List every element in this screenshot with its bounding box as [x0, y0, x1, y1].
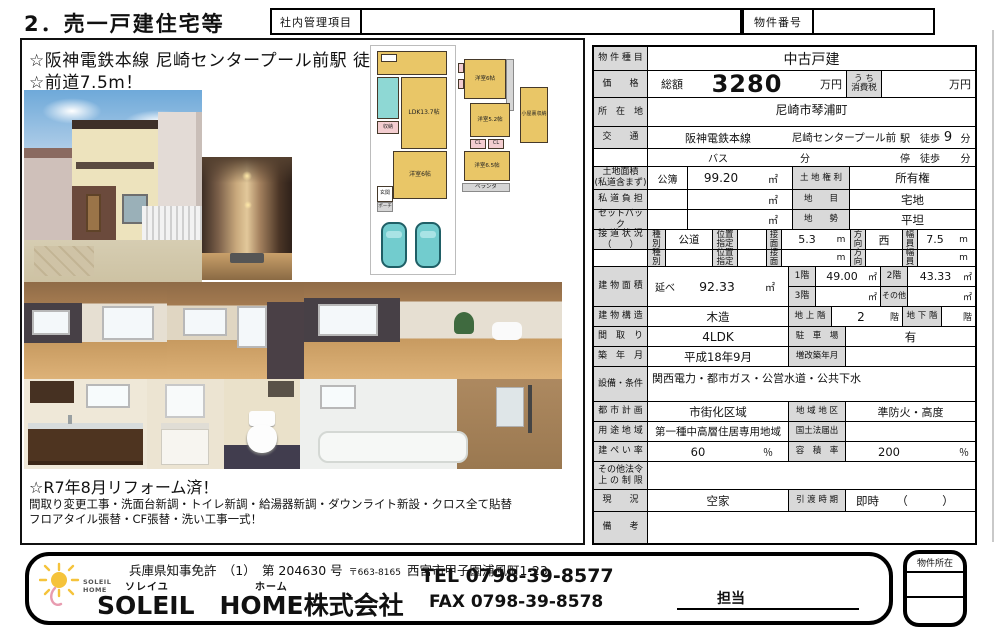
zoning-value: 第一種中高層住居専用地域	[648, 422, 788, 441]
parking-label: 駐 車 場	[788, 327, 846, 346]
balcony	[76, 162, 154, 169]
windshield	[386, 231, 402, 238]
property-type-value: 中古戸建	[648, 47, 975, 70]
window	[32, 310, 70, 335]
road-width-unit: m	[952, 230, 975, 249]
window	[183, 308, 227, 336]
car-icon	[381, 222, 407, 268]
far-unit: ％	[932, 442, 975, 461]
chair	[492, 322, 522, 340]
road-pos-label: 位置 指定	[712, 230, 738, 249]
ldk-label: LDK13.7帖	[408, 110, 439, 117]
row-coverage: 建 ぺ い 率 60 ％ 容 積 率 200 ％	[594, 442, 975, 462]
land-area-unit: ㎡	[754, 167, 792, 189]
photo-toilet	[224, 379, 300, 469]
row-traffic-1: 交 通 阪神電鉄本線 尼崎センタープール前 駅 徒歩 9 分	[594, 127, 975, 149]
other-law-value	[648, 462, 975, 489]
sink	[381, 54, 397, 62]
downlight	[244, 201, 252, 209]
price-prefix: 総額	[648, 71, 696, 97]
row-location: 所 在 地 尼崎市琴浦町	[594, 98, 975, 127]
range-hood	[30, 381, 74, 403]
front-door	[86, 194, 101, 232]
setback-value	[648, 210, 688, 229]
photo-kitchen	[24, 379, 147, 469]
reform-title: ☆R7年8月リフォーム済！	[29, 474, 218, 498]
internal-management-box: 社内管理項目	[270, 8, 742, 35]
attic-room: 小屋裏収納	[520, 87, 548, 143]
total-floor-value: 92.33	[682, 267, 752, 306]
bedroom-1f: 洋室6帖	[393, 151, 447, 199]
property-flyer-page: 2．売一戸建住宅等 社内管理項目 物件番号 ☆阪神電鉄本線 尼崎センタープール前…	[0, 0, 1000, 632]
floor2-area: 43.33㎡	[908, 267, 975, 286]
below-ground-label: 地 下 階	[902, 307, 942, 326]
property-location-label: 物件所在	[907, 556, 963, 569]
land-area-value: 99.20	[688, 167, 754, 189]
toilet-bowl	[247, 425, 277, 453]
toilet-tank	[249, 411, 275, 426]
floorplan-attic: 小屋裏収納	[520, 87, 548, 143]
road-dir-value: 西	[866, 230, 902, 249]
internal-management-label: 社内管理項目	[272, 10, 362, 33]
above-ground-floors: 2階	[832, 307, 902, 326]
other-area-label: その他	[880, 287, 908, 306]
row-road-1: 接 道 状 況 （ ） 種 別 公道 位置 指定 接 面 5.3 m 方 向 西…	[594, 230, 975, 250]
topography-value: 平坦	[850, 210, 975, 229]
windshield	[420, 231, 436, 238]
divider	[907, 571, 963, 573]
above-ground-label: 地 上 階	[788, 307, 832, 326]
page-title: 2．売一戸建住宅等	[24, 8, 225, 38]
floor2-label: 2階	[880, 267, 908, 286]
land-right-label: 土 地 権 利	[792, 167, 850, 189]
handover-label: 引 渡 時 期	[788, 490, 846, 511]
station: 尼崎センタープール前	[788, 127, 900, 148]
license-number: 兵庫県知事免許 （1） 第 204630 号	[129, 560, 343, 579]
far-label: 容 積 率	[788, 442, 846, 461]
land-law-value	[846, 422, 975, 441]
district-value: 準防火・高度	[846, 402, 975, 421]
land-register-label: 公簿	[648, 167, 688, 189]
land-law-label: 国土法届出	[788, 422, 846, 441]
car-icon	[415, 222, 441, 268]
price-unit: 万円	[798, 71, 846, 97]
stop-label: 停 徒歩	[900, 149, 940, 166]
photo-room-2	[167, 282, 304, 379]
row-price: 価 格 総額 3280 万円 う ち 消費税 万円	[594, 71, 975, 98]
floorplan-2f: 洋室6帖 洋室5.2帖 CL CL 洋室6.5帖 ベランダ	[458, 57, 516, 193]
tax-label: う ち 消費税	[846, 71, 882, 97]
road-type-label: 種 別	[648, 230, 666, 249]
window	[268, 381, 294, 397]
floor3-area: ㎡	[816, 287, 880, 306]
entry-mat	[230, 253, 264, 263]
location-value: 尼崎市琴浦町	[648, 98, 975, 126]
photo-hallway	[202, 157, 292, 280]
minutes-unit: 分	[956, 127, 975, 148]
bath-mirror	[496, 387, 524, 427]
kitchen-cabinets	[28, 429, 143, 465]
property-number-box: 物件番号	[742, 8, 935, 35]
bathtub	[318, 431, 468, 463]
row-facilities: 設備・条件 関西電力・都市ガス・公営水道・公共下水	[594, 367, 975, 402]
storage-closet: 収納	[377, 121, 399, 134]
row-building-area: 建 物 面 積 延べ 92.33 ㎡ 1階 49.00㎡ 2階 43.33㎡ 3…	[594, 267, 975, 307]
land-category-value: 宅地	[850, 190, 975, 209]
layout-value: 4LDK	[648, 327, 788, 346]
downlight	[242, 171, 252, 181]
floor1-label: 1階	[788, 267, 816, 286]
photo-vanity	[147, 379, 224, 469]
total-floor-label: 延べ	[648, 267, 682, 306]
contact-person-line: 担当	[677, 582, 859, 610]
walk-minutes: 9	[940, 127, 956, 148]
city-plan-value: 市街化区域	[648, 402, 788, 421]
company-name: SOLEIL HOME株式会社	[97, 586, 404, 622]
tax-value	[882, 71, 930, 97]
row-built-date: 築 年 月 平成18年9月 増改築年月	[594, 347, 975, 367]
road-width-value: 7.5	[918, 230, 952, 249]
bedroom-1f-label: 洋室6帖	[409, 172, 431, 179]
sliding-door	[237, 306, 267, 348]
white-fence	[142, 206, 202, 242]
road-face-value: 5.3	[782, 230, 832, 249]
window	[320, 385, 356, 409]
status-value: 空家	[648, 490, 788, 511]
sun-logo-icon	[39, 562, 83, 610]
plant	[454, 312, 474, 334]
private-road-value	[648, 190, 688, 209]
row-structure: 建 物 構 造 木造 地 上 階 2階 地 下 階 階	[594, 307, 975, 327]
bathroom-room	[377, 77, 399, 119]
spec-table: 物 件 種 目 中古戸建 価 格 総額 3280 万円 う ち 消費税 万円 所…	[592, 45, 977, 545]
renovation-date-value	[846, 347, 975, 366]
mirror	[165, 384, 205, 418]
other-area: ㎡	[908, 287, 975, 306]
below-ground-floors: 階	[942, 307, 975, 326]
setback-unit: ㎡	[754, 210, 792, 229]
fax-number: FAX 0798-39-8578	[429, 592, 603, 612]
private-road-unit: ㎡	[754, 190, 792, 209]
internal-management-value	[362, 10, 740, 33]
property-number-label: 物件番号	[744, 10, 814, 33]
window	[86, 384, 130, 408]
photo-room-3	[304, 282, 562, 379]
row-setback: セットバック ㎡ 地 勢 平坦	[594, 210, 975, 230]
company-footer: SOLEILHOME 兵庫県知事免許 （1） 第 204630 号 〒663-8…	[25, 552, 893, 625]
row-land-area: 土地面積 (私道含まず) 公簿 99.20 ㎡ 土 地 権 利 所有権	[594, 167, 975, 190]
photo-exterior	[24, 90, 202, 282]
ldk-room: LDK13.7帖	[401, 77, 447, 149]
bus-label: バス	[648, 149, 788, 166]
tel-number: TEL 0798-39-8577	[421, 565, 614, 587]
window	[318, 304, 378, 336]
window	[102, 306, 154, 340]
facilities-value: 関西電力・都市ガス・公営水道・公共下水	[648, 367, 975, 401]
total-floor-unit: ㎡	[752, 267, 788, 306]
bedroom-2f-a: 洋室6帖	[464, 59, 506, 99]
row-zoning: 用 途 地 域 第一種中高層住居専用地域 国土法届出	[594, 422, 975, 442]
road-face-label: 接 面	[766, 230, 782, 249]
stop-minutes-unit: 分	[956, 149, 975, 166]
property-number-value	[814, 10, 933, 33]
tax-unit: 万円	[930, 71, 975, 97]
row-layout: 間 取 り 4LDK 駐 車 場 有	[594, 327, 975, 347]
rail-line: 阪神電鉄本線	[648, 127, 788, 148]
row-property-type: 物 件 種 目 中古戸建	[594, 47, 975, 71]
porch: ポーチ	[377, 202, 393, 212]
row-road-2: 種 別 位置 指定 接 面 m 方 向 幅 員 m	[594, 250, 975, 267]
row-private-road: 私 道 負 担 ㎡ 地 目 宅地	[594, 190, 975, 210]
veranda-bottom: ベランダ	[462, 183, 510, 192]
row-traffic-2: バス 分 停 徒歩 分	[594, 149, 975, 167]
district-label: 地 域 地 区	[788, 402, 846, 421]
row-remarks: 備 考	[594, 512, 975, 543]
postal-code: 〒663-8165	[349, 565, 401, 578]
row-city-plan: 都 市 計 画 市街化区域 地 域 地 区 準防火・高度	[594, 402, 975, 422]
reform-line-1: 間取り変更工事・洗面台新調・トイレ新調・給湯器新調・ダウンライト新設・クロス全て…	[29, 496, 512, 512]
photo-bathroom	[300, 379, 562, 469]
accent-wall	[267, 302, 304, 379]
divider	[907, 596, 963, 598]
row-status: 現 況 空家 引 渡 時 期 即時 （ ）	[594, 490, 975, 512]
photo-panel: ☆阪神電鉄本線 尼崎センタープール前駅 徒歩9分！ ☆前道7.5m！	[20, 38, 585, 545]
road-pos-value	[738, 230, 766, 249]
property-location-box: 物件所在	[903, 550, 967, 627]
neighbor-house	[24, 148, 76, 250]
stone-paving	[34, 246, 94, 276]
coverage-unit: ％	[748, 442, 788, 461]
handover-value: 即時 （ ）	[846, 490, 975, 511]
walk-label: 駅 徒歩	[900, 127, 940, 148]
remarks-value	[648, 512, 975, 543]
floor1-area: 49.00㎡	[816, 267, 880, 286]
road-width-label: 幅 員	[902, 230, 918, 249]
land-category-label: 地 目	[792, 190, 850, 209]
faucet	[68, 415, 72, 424]
photo-room-1	[24, 282, 167, 379]
entrance: 玄関	[377, 186, 393, 202]
built-date-value: 平成18年9月	[648, 347, 788, 366]
vanity-cabinet	[161, 429, 209, 465]
row-other-law: その他法令 上 の 制 限	[594, 462, 975, 490]
parking-value: 有	[846, 327, 975, 346]
renovation-date-label: 増改築年月	[788, 347, 846, 366]
page-edge-line	[992, 30, 994, 542]
land-right-value: 所有権	[850, 167, 975, 189]
bedroom-2f-c: 洋室6.5帖	[464, 151, 510, 181]
closet: CL	[488, 139, 504, 149]
bus-minutes-unit: 分	[788, 149, 900, 166]
floor3-label: 3階	[788, 287, 816, 306]
structure-value: 木造	[648, 307, 788, 326]
far-value: 200	[846, 442, 932, 461]
price-value: 3280	[696, 71, 798, 97]
bedroom-2f-b: 洋室5.2帖	[470, 103, 510, 137]
road-type-value: 公道	[666, 230, 712, 249]
reform-line-2: フロアタイル張替・CF張替・洗い工事一式！	[29, 511, 262, 527]
floorplan-1f: LDK13.7帖 収納 洋室6帖 玄関 ポーチ	[370, 45, 456, 275]
shower-bar	[528, 385, 532, 433]
coverage-value: 60	[648, 442, 748, 461]
topography-label: 地 勢	[792, 210, 850, 229]
road-face-unit: m	[832, 230, 850, 249]
road-dir-label: 方 向	[850, 230, 866, 249]
closet: CL	[470, 139, 486, 149]
